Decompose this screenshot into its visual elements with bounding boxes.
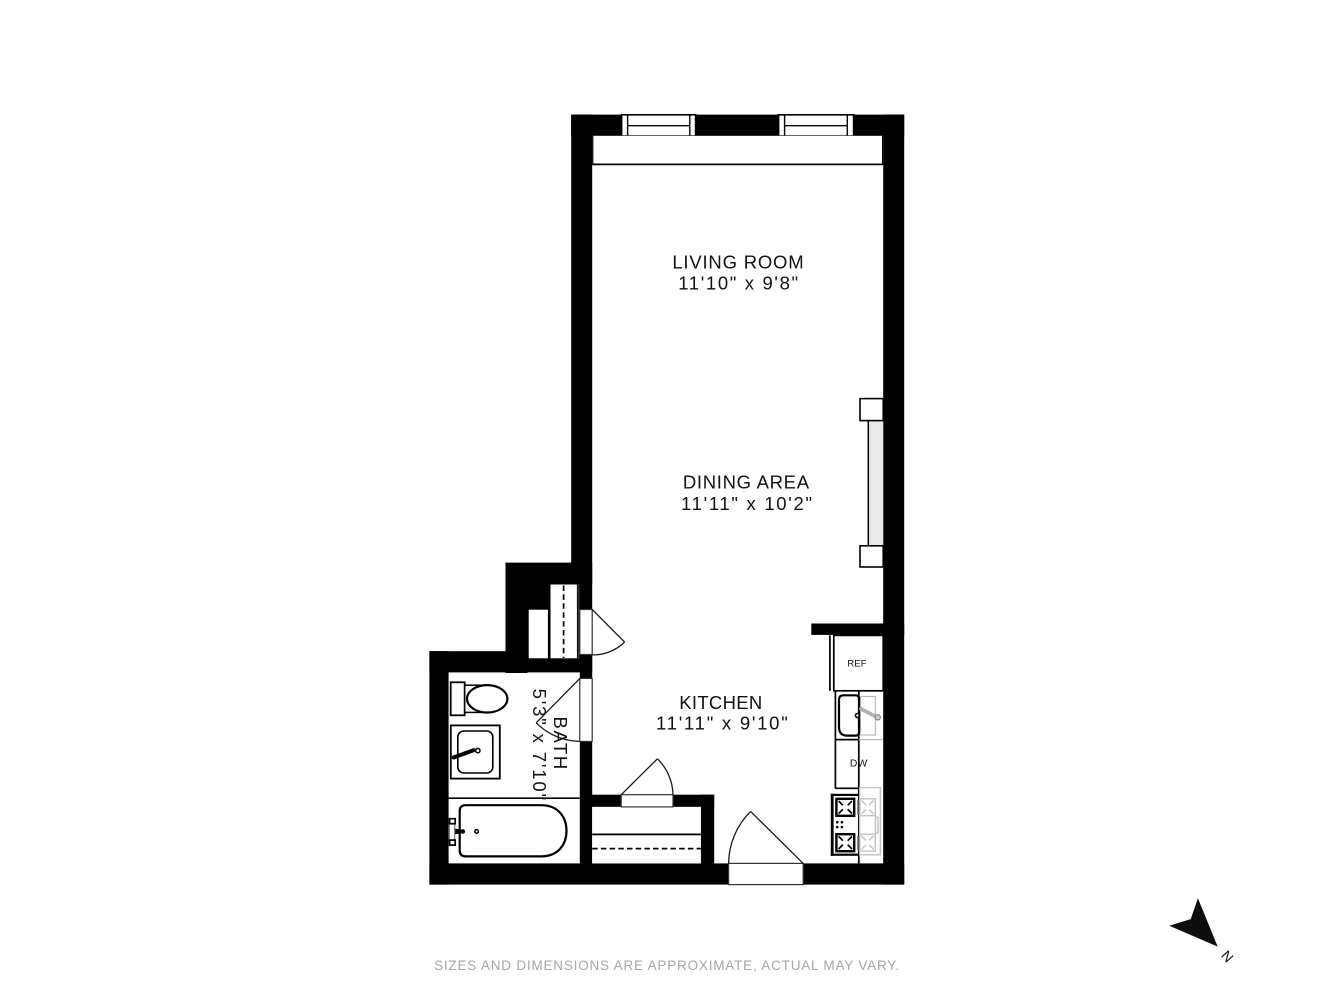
svg-text:DINING AREA: DINING AREA [683, 471, 810, 492]
svg-text:11'11" x 9'10": 11'11" x 9'10" [656, 713, 790, 734]
svg-text:N: N [1218, 947, 1237, 965]
svg-text:DW: DW [850, 759, 868, 770]
svg-text:11'10" x 9'8": 11'10" x 9'8" [678, 273, 800, 294]
svg-text:5'3" x 7'10": 5'3" x 7'10" [529, 689, 550, 802]
svg-text:SIZES AND DIMENSIONS ARE APPRO: SIZES AND DIMENSIONS ARE APPROXIMATE, AC… [434, 958, 900, 973]
svg-text:REF: REF [847, 658, 867, 669]
svg-text:KITCHEN: KITCHEN [679, 692, 762, 713]
svg-text:LIVING ROOM: LIVING ROOM [672, 252, 804, 273]
svg-text:11'11" x 10'2": 11'11" x 10'2" [681, 493, 814, 514]
svg-text:BATH: BATH [550, 717, 571, 771]
